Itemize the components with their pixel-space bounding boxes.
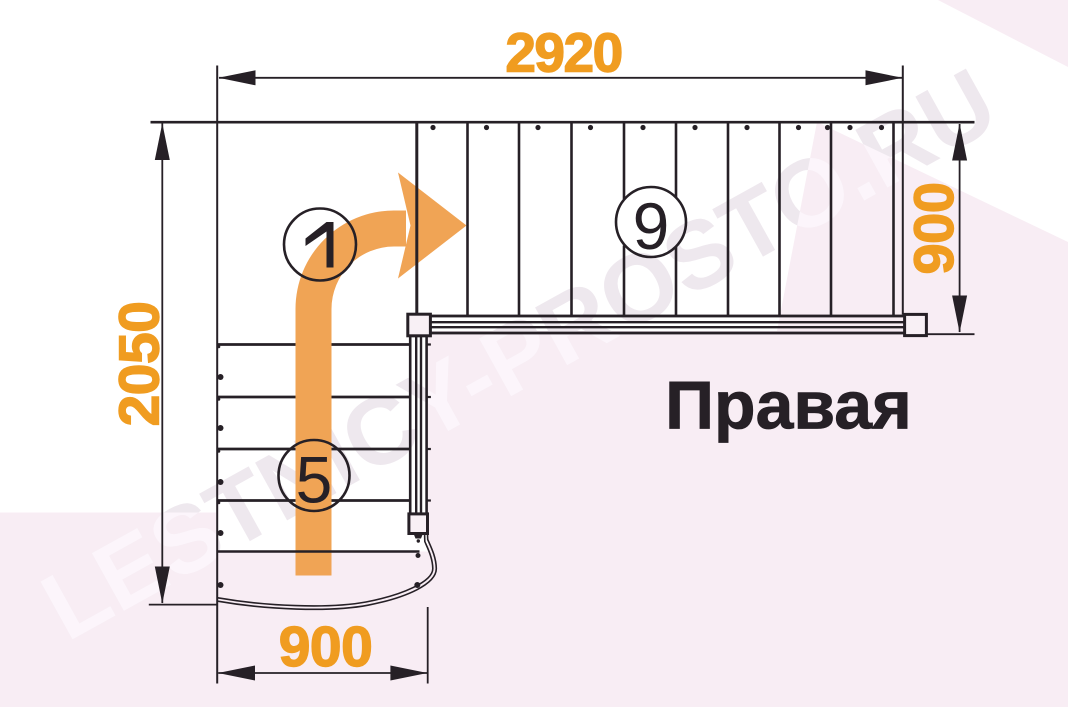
svg-text:2920: 2920: [505, 22, 621, 84]
svg-text:2050: 2050: [108, 302, 172, 427]
svg-text:9: 9: [633, 189, 670, 263]
svg-text:5: 5: [296, 443, 333, 517]
svg-text:Правая: Правая: [665, 368, 912, 444]
svg-text:900: 900: [902, 183, 965, 275]
svg-text:900: 900: [279, 615, 373, 679]
